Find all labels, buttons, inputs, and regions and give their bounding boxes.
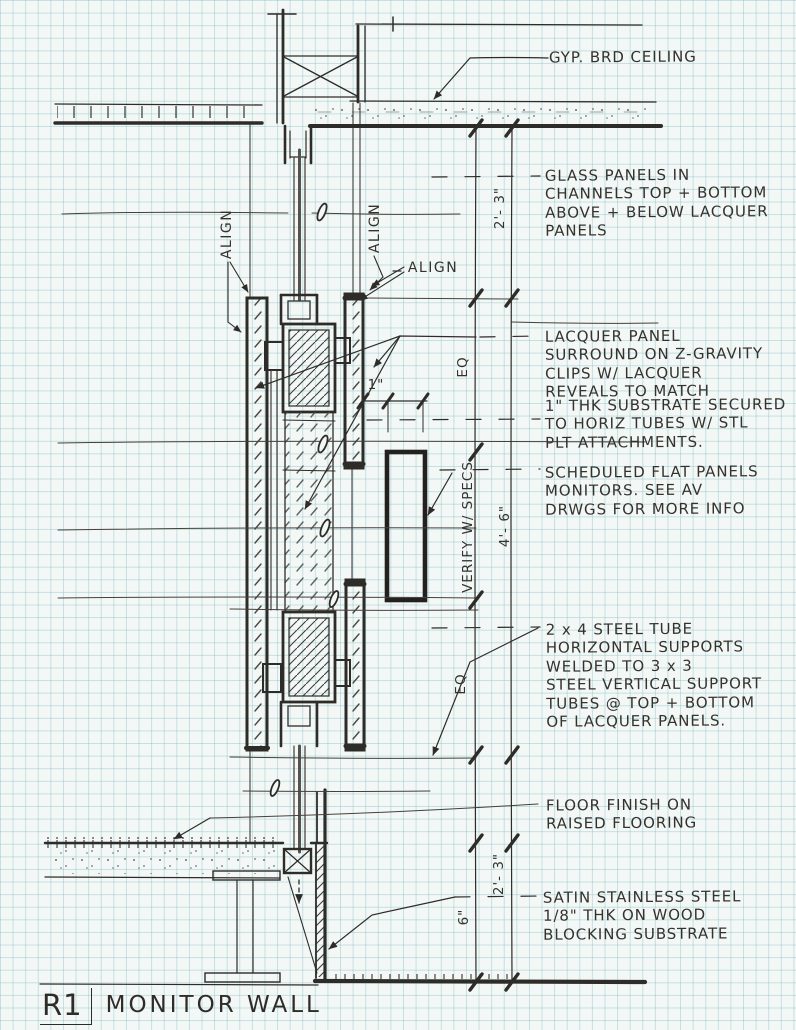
dimension-eq-lower: EQ xyxy=(453,673,469,694)
raised-floor xyxy=(40,837,318,985)
note-floor-finish: FLOOR FINISH ON RAISED FLOORING xyxy=(546,795,697,833)
dimension-substrate-thickness: 1" xyxy=(368,377,385,393)
note-steel-tubes: 2 x 4 STEEL TUBE HORIZONTAL SUPPORTS WEL… xyxy=(546,619,763,731)
note-lacquer-panel: LACQUER PANEL SURROUND ON Z-GRAVITY CLIP… xyxy=(545,326,764,401)
dimension-monitor-height: 4'- 6" xyxy=(497,505,513,547)
note-substrate: 1" THK SUBSTRATE SECURED TO HORIZ TUBES … xyxy=(545,395,787,452)
note-stainless-base: SATIN STAINLESS STEEL 1/8" THK ON WOOD B… xyxy=(543,887,742,944)
flat-panel-monitor xyxy=(387,452,425,600)
detail-title: MONITOR WALL xyxy=(106,992,322,1018)
dimension-top-segment: 2'- 3" xyxy=(492,187,508,229)
align-label-left: ALIGN xyxy=(219,209,235,259)
note-monitors: SCHEDULED FLAT PANELS MONITORS. SEE AV D… xyxy=(545,462,759,519)
detail-reference: R1 xyxy=(40,988,92,1025)
note-glass-panels: GLASS PANELS IN CHANNELS TOP + BOTTOM AB… xyxy=(545,165,769,240)
dimension-eq-upper: EQ xyxy=(455,356,471,377)
title-block: R1 MONITOR WALL xyxy=(40,988,322,1025)
leader-dash-rows xyxy=(367,176,540,897)
gyp-board-ceiling xyxy=(55,101,661,126)
upper-glass-panel xyxy=(285,126,311,300)
graph-paper-sheet: GYP. BRD CEILING GLASS PANELS IN CHANNEL… xyxy=(0,0,796,1030)
align-label-right: ALIGN xyxy=(367,203,383,253)
align-label-callout: ALIGN xyxy=(408,260,458,276)
dimension-raised-floor: 6" xyxy=(456,909,472,926)
note-gyp-ceiling: GYP. BRD CEILING xyxy=(549,47,697,66)
dimension-bottom-segment: 2'- 3" xyxy=(491,853,507,895)
dimension-verify-note: VERIFY W/ SPECS xyxy=(460,461,476,593)
